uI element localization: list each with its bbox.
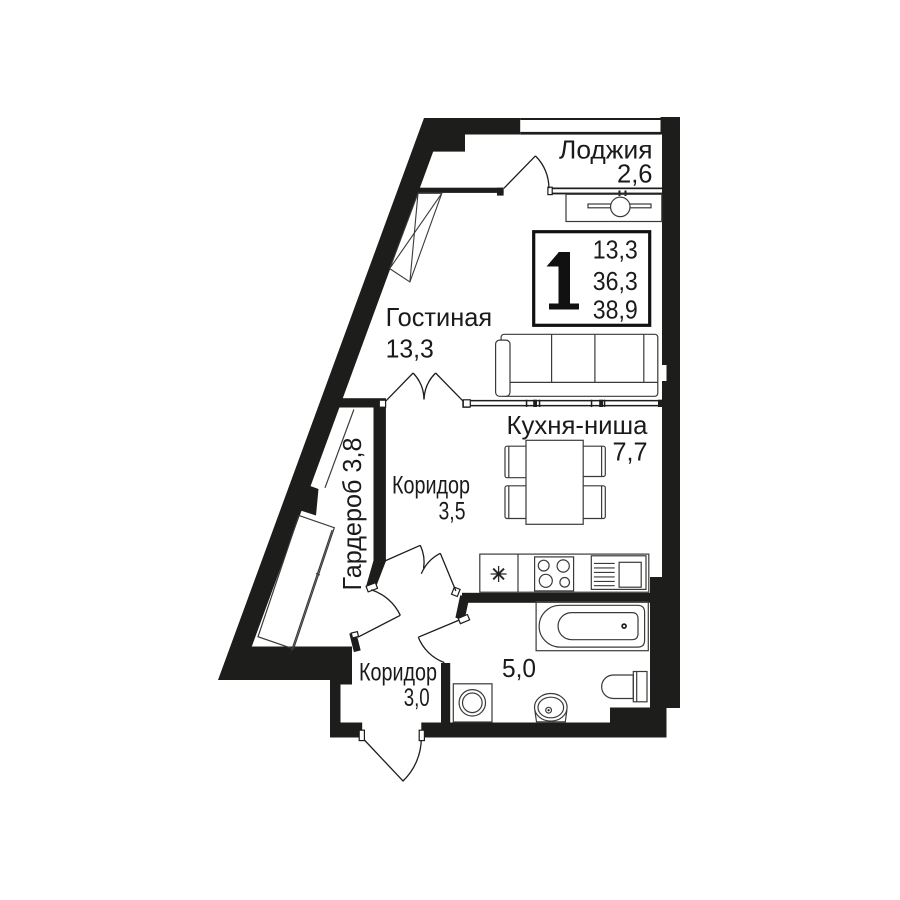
svg-text:36,3: 36,3 <box>593 268 638 296</box>
svg-text:Кухня-ниша: Кухня-ниша <box>507 410 649 440</box>
svg-text:Гостиная: Гостиная <box>386 302 493 332</box>
svg-text:13,3: 13,3 <box>386 334 434 364</box>
svg-text:5,0: 5,0 <box>502 655 536 683</box>
svg-text:3,5: 3,5 <box>439 498 466 526</box>
svg-text:13,3: 13,3 <box>593 236 638 264</box>
svg-text:Коридор: Коридор <box>359 659 437 687</box>
svg-text:Гардероб 3,8: Гардероб 3,8 <box>337 438 367 591</box>
svg-text:7,7: 7,7 <box>613 437 648 467</box>
svg-text:2,6: 2,6 <box>617 159 653 189</box>
svg-text:3,0: 3,0 <box>404 684 430 712</box>
svg-text:38,9: 38,9 <box>593 297 638 325</box>
svg-text:Коридор: Коридор <box>392 472 470 500</box>
